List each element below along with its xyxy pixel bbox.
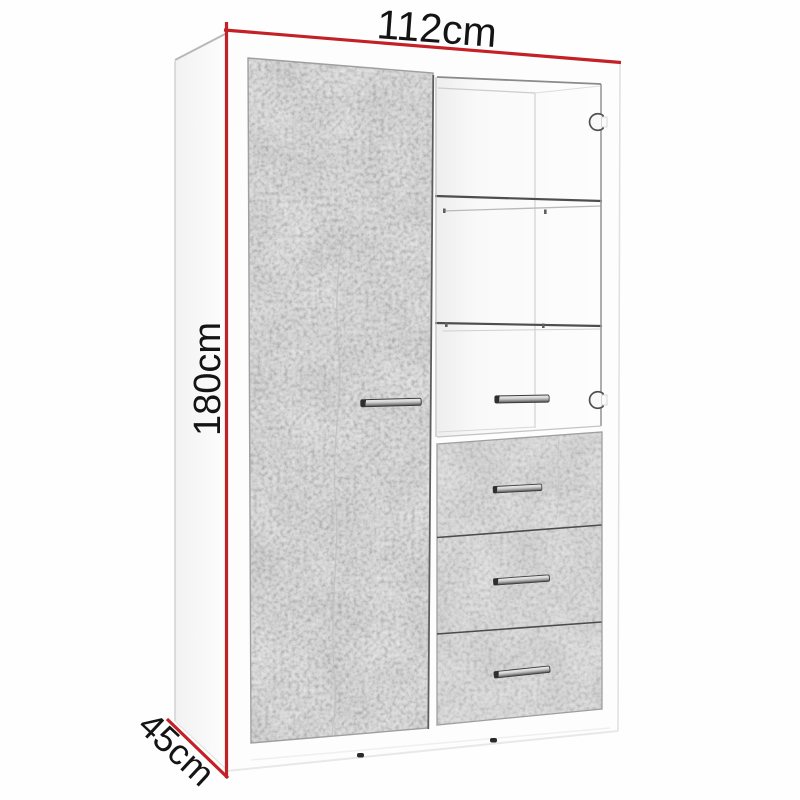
svg-text:112cm: 112cm [375,1,498,56]
svg-text:180cm: 180cm [187,322,229,436]
